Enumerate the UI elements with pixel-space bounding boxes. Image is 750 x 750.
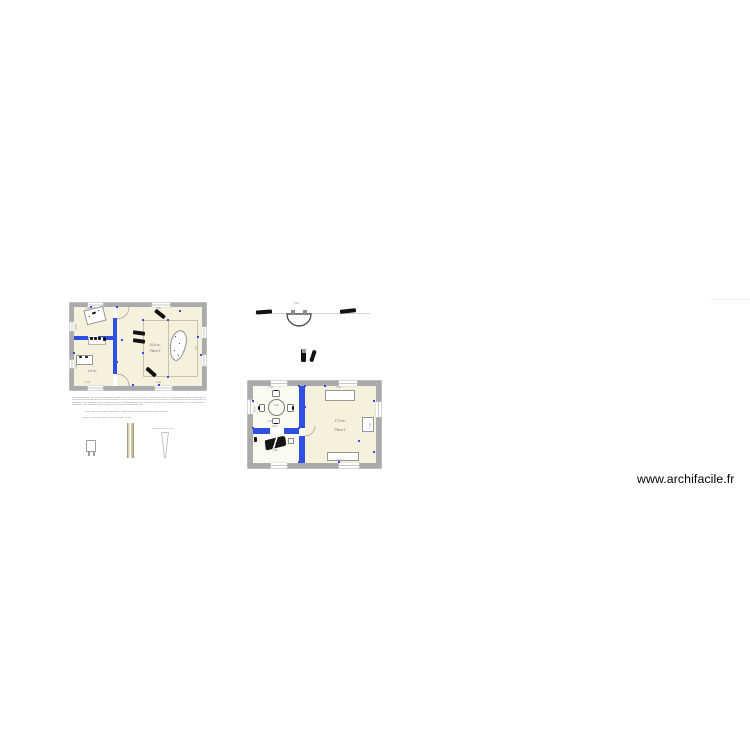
- dimension-label: 2,96: [268, 387, 273, 390]
- snap-point: [142, 319, 144, 321]
- room-area-label: 4,9 m²: [82, 370, 102, 374]
- annotation-line: Document non contractuel établi d'après …: [72, 404, 182, 407]
- dimension-label: 3,43: [85, 382, 90, 385]
- dimension-label: 0,60: [294, 303, 299, 306]
- dimension-label: 7,02: [196, 346, 199, 351]
- snap-point: [358, 440, 360, 442]
- stray-line: [711, 299, 750, 300]
- annotation-caption: Détail : coffre de volet roulant existan…: [82, 417, 132, 420]
- piano-label: 1,50: [266, 450, 284, 453]
- snap-point: [158, 384, 160, 386]
- prop-icon: [161, 432, 169, 458]
- dimension-label: 3,81: [76, 364, 79, 369]
- door-dimension-label: 0,80: [272, 426, 277, 429]
- table-label: 1,10: [267, 405, 285, 408]
- snap-point: [304, 406, 306, 408]
- chair-back: [292, 406, 294, 410]
- dimension-label: 3,80: [336, 387, 341, 390]
- snap-point: [298, 427, 300, 429]
- sideboard-icon: [327, 452, 359, 461]
- plan1-inner-divider: [168, 320, 169, 377]
- chair-back: [258, 406, 260, 410]
- snap-point: [252, 400, 254, 402]
- snap-point: [142, 352, 144, 354]
- snap-point: [200, 354, 202, 356]
- piano-stool-icon: [288, 438, 294, 444]
- watermark: www.archifacile.fr: [637, 472, 734, 486]
- room-area-label: 17,9 m²: [323, 420, 357, 424]
- furniture-black-icon: [254, 437, 257, 442]
- snap-point: [116, 306, 118, 308]
- snap-point: [121, 339, 123, 341]
- wardrobe-detail: [85, 356, 88, 358]
- shutter-box-icon: [86, 440, 96, 452]
- shutter-box-foot: [93, 452, 95, 456]
- snap-point: [324, 385, 326, 387]
- basin-scene: 0,60: [250, 300, 380, 366]
- dimension-label: 2,77: [255, 407, 258, 412]
- snap-point: [298, 385, 300, 387]
- floor-plan-1: 16,6 m² Pièce 2 4,9 m² 3,43 4,06 3,43 4,…: [70, 303, 206, 390]
- shutter-box-foot: [88, 452, 90, 456]
- bathroom-fixture-icon: [103, 337, 106, 341]
- snap-point: [197, 336, 199, 338]
- page: 16,6 m² Pièce 2 4,9 m² 3,43 4,06 3,43 4,…: [0, 0, 750, 750]
- dimension-label: 2,96: [268, 421, 273, 424]
- bathroom-fixture-icon: [90, 337, 93, 340]
- annotation-caption: Plan coté du rez-de-chaussée — état proj…: [85, 411, 171, 414]
- stool-top: [302, 349, 306, 353]
- dimension-label: 3,43: [85, 308, 90, 311]
- dimension-label: 2,61: [76, 324, 79, 329]
- snap-point: [116, 361, 118, 363]
- snap-point: [298, 461, 300, 463]
- bathroom-fixture-icon: [94, 337, 97, 340]
- snap-point: [167, 319, 169, 321]
- snap-point: [167, 376, 169, 378]
- snap-point: [73, 352, 75, 354]
- snap-point: [132, 384, 134, 386]
- floor-plan-2: 1,10 1,50 0,80 17,9 m² Pièce 3 2,96 2,96…: [248, 381, 381, 468]
- snap-point: [179, 310, 181, 312]
- dimension-label: 5,06: [370, 423, 373, 428]
- bathroom-fixture-icon: [98, 337, 101, 340]
- wood-post-icon: [127, 423, 134, 458]
- snap-point: [373, 400, 375, 402]
- annotation-caption: Étai de soutien provisoire: [152, 428, 174, 431]
- wardrobe-detail: [79, 356, 82, 358]
- dimension-label: 4,06: [156, 308, 161, 311]
- snap-point: [252, 427, 254, 429]
- bed-icon: [325, 390, 355, 401]
- snap-point: [373, 451, 375, 453]
- snap-point: [90, 306, 92, 308]
- chair-back: [274, 390, 278, 392]
- snap-point: [338, 461, 340, 463]
- room-area-label: 16,6 m²: [140, 344, 170, 348]
- room-name-label: Pièce 2: [140, 350, 170, 354]
- snap-point: [304, 385, 306, 387]
- room-name-label: Pièce 3: [323, 429, 357, 433]
